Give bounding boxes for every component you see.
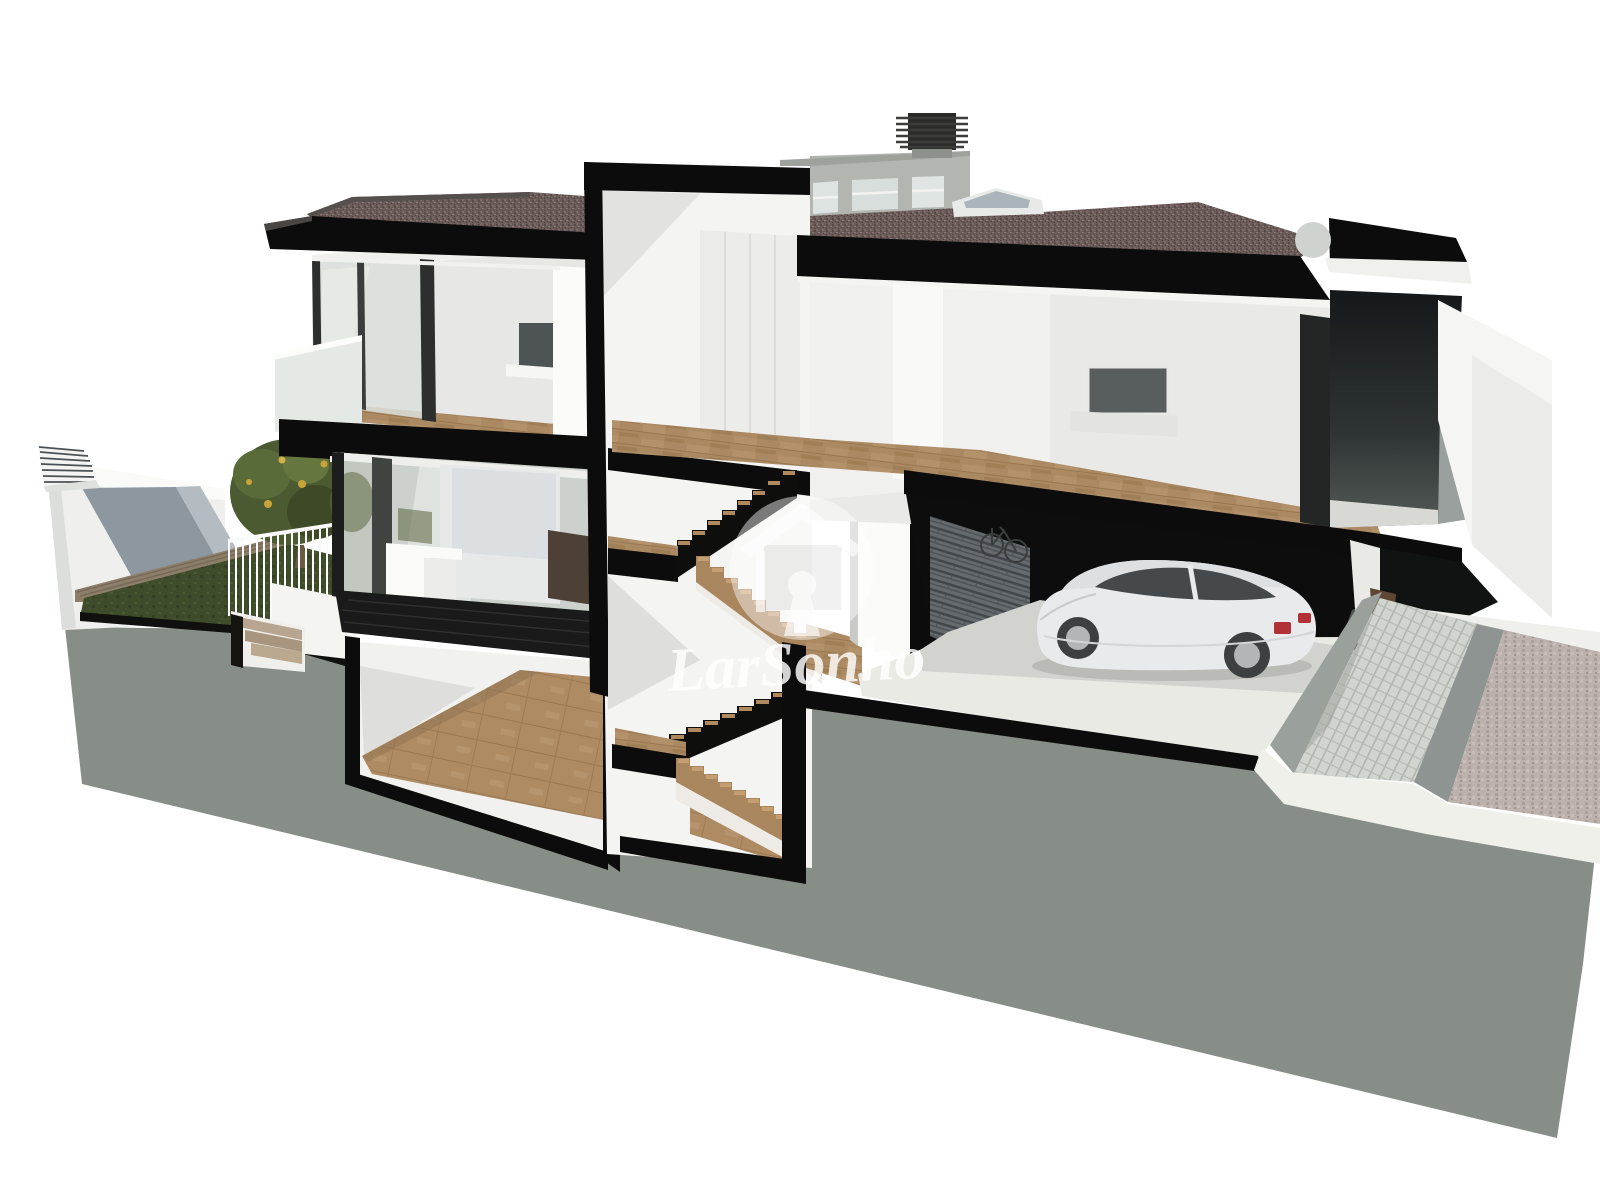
svg-text:LarSonho: LarSonho bbox=[664, 624, 927, 705]
